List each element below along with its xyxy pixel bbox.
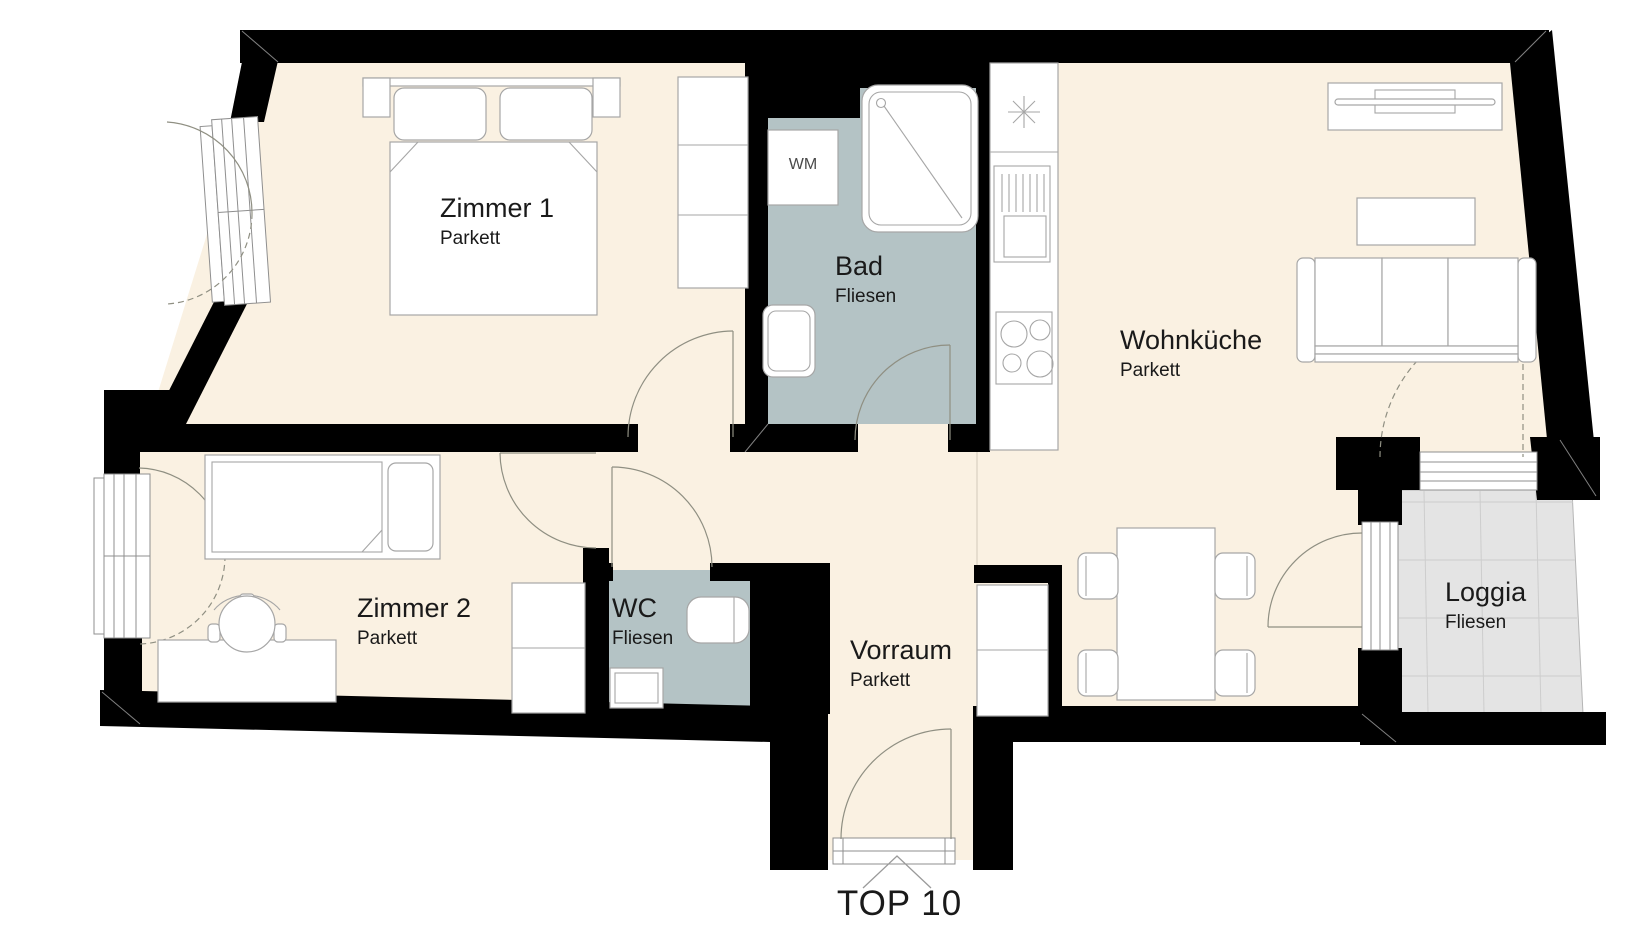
room-floor-type: Parkett — [357, 629, 471, 650]
wall-loggia-bottom — [1360, 712, 1606, 745]
wall-mid-a — [140, 424, 638, 452]
dining-chair — [1215, 553, 1255, 599]
sofa — [1297, 258, 1536, 362]
zimmer1-window — [200, 117, 271, 307]
room-name: Vorraum — [850, 636, 952, 666]
zimmer2-window — [94, 474, 150, 638]
sofa-seat — [1315, 258, 1382, 346]
bad-label: Bad Fliesen — [835, 252, 896, 308]
kitchen-counter — [990, 63, 1058, 450]
nightstand-left — [363, 78, 390, 117]
dining-table — [1117, 528, 1215, 700]
chair-armrest — [208, 624, 220, 642]
sofa-seat — [1448, 258, 1518, 346]
room-name: Zimmer 1 — [440, 194, 554, 224]
wall-mid-b — [730, 424, 858, 452]
toilet — [687, 597, 749, 643]
wall-wc-top-right — [710, 563, 755, 581]
bed-headboard — [363, 78, 620, 86]
room-floor-type: Parkett — [1120, 361, 1262, 382]
room-name: Loggia — [1445, 578, 1526, 608]
room-name: Bad — [835, 252, 896, 282]
wc-label: WC Fliesen — [612, 594, 673, 650]
room-name: WC — [612, 594, 673, 624]
wall-loggia-left-lower — [1358, 648, 1402, 716]
wall-loggia-top-right — [1530, 437, 1600, 500]
room-floor-type: Fliesen — [612, 629, 673, 650]
wall-bad-topshower — [858, 63, 980, 88]
zimmer1-label: Zimmer 1 Parkett — [440, 194, 554, 250]
wall-loggia-top-left — [1336, 437, 1420, 490]
sofa-armrest-left — [1297, 258, 1315, 362]
wall-left-lower-a — [104, 420, 140, 478]
wohnkueche-label: Wohnküche Parkett — [1120, 326, 1262, 382]
wall-vestibule-right — [973, 706, 1013, 870]
pillow-left — [394, 88, 486, 140]
dining-chair — [1215, 650, 1255, 696]
wall-top — [240, 30, 1549, 63]
coffee-table — [1357, 198, 1475, 245]
pillow-right — [500, 88, 592, 140]
wall-vestibule-left — [770, 706, 828, 870]
vestibule-floor — [820, 700, 973, 860]
wall-bad-topleft — [765, 63, 860, 118]
loggia-top-window — [1420, 452, 1537, 490]
room-name: Zimmer 2 — [357, 594, 471, 624]
wall-bottom-right — [1013, 706, 1365, 742]
sofa-seat — [1382, 258, 1448, 346]
floorplan-drawing — [0, 0, 1634, 948]
room-floor-type: Fliesen — [835, 287, 896, 308]
wall-wc-top-left — [583, 563, 613, 581]
washing-machine-label: WM — [768, 156, 838, 174]
dining-chair — [1078, 650, 1118, 696]
unit-label: TOP 10 — [812, 884, 987, 924]
room-floor-type: Parkett — [440, 229, 554, 250]
tv-panel — [1335, 99, 1495, 105]
floorplan: Zimmer 1 Parkett Bad Fliesen Wohnküche P… — [0, 0, 1634, 948]
bad-washbasin — [763, 305, 815, 377]
sofa-back — [1315, 354, 1518, 362]
wall-cabinet-stub-top — [974, 565, 1062, 583]
dining-chair — [1078, 553, 1118, 599]
vorraum-label: Vorraum Parkett — [850, 636, 952, 692]
wc-washbasin — [610, 668, 663, 708]
wall-wc-right-chunk — [750, 563, 830, 714]
zimmer1-furniture — [363, 77, 748, 315]
entrance-door-frame — [833, 838, 955, 864]
wall-cabinet-stub-right — [1048, 583, 1062, 716]
room-name: Wohnküche — [1120, 326, 1262, 356]
single-bed-pillow — [388, 463, 433, 551]
sofa-back — [1315, 346, 1518, 354]
nightstand-right — [593, 78, 620, 117]
room-floor-type: Fliesen — [1445, 613, 1526, 634]
chair-armrest — [274, 624, 286, 642]
zimmer2-label: Zimmer 2 Parkett — [357, 594, 471, 650]
loggia-left-window — [1362, 522, 1398, 650]
sofa-armrest-right — [1518, 258, 1536, 362]
zimmer1-wardrobe — [678, 77, 748, 288]
loggia-label: Loggia Fliesen — [1445, 578, 1526, 634]
room-floor-type: Parkett — [850, 671, 952, 692]
chair-seat — [219, 596, 275, 652]
